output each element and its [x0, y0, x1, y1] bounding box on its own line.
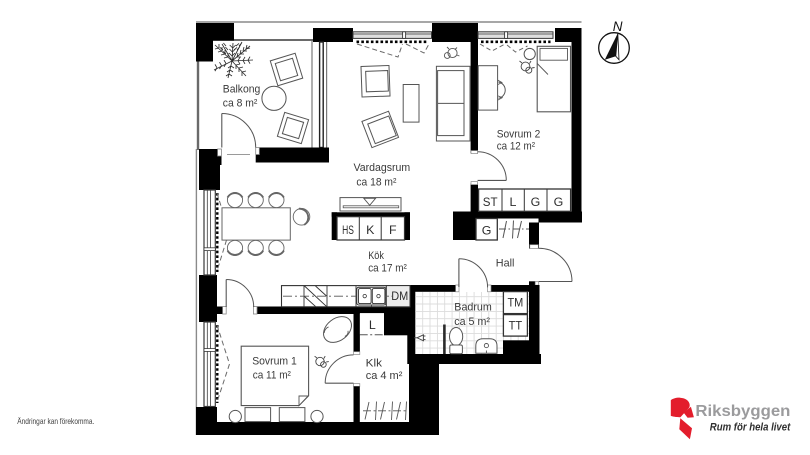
svg-text:TT: TT [509, 319, 523, 333]
svg-text:Hall: Hall [496, 257, 515, 269]
svg-text:K: K [366, 223, 375, 237]
svg-text:L: L [369, 318, 376, 332]
svg-text:DM: DM [391, 289, 408, 303]
svg-text:G: G [554, 195, 564, 209]
svg-text:ca 5 m²: ca 5 m² [454, 316, 490, 328]
svg-text:Kök: Kök [368, 250, 384, 262]
svg-text:Badrum: Badrum [454, 301, 492, 313]
svg-text:TM: TM [508, 296, 524, 310]
svg-text:ca 8 m²: ca 8 m² [223, 98, 258, 110]
svg-text:Ändringar kan förekomma.: Ändringar kan förekomma. [17, 416, 94, 426]
svg-text:Sovrum 1: Sovrum 1 [252, 356, 297, 368]
svg-text:Vardagsrum: Vardagsrum [354, 162, 411, 174]
svg-text:G: G [482, 224, 492, 238]
svg-text:Riksbyggen: Riksbyggen [695, 403, 790, 420]
svg-text:ca 12 m²: ca 12 m² [497, 141, 536, 153]
svg-text:G: G [531, 195, 541, 209]
svg-text:ca 11 m²: ca 11 m² [253, 369, 291, 381]
svg-text:F: F [389, 223, 397, 237]
svg-text:N: N [613, 19, 623, 34]
svg-text:ST: ST [483, 195, 498, 209]
svg-text:Sovrum 2: Sovrum 2 [497, 128, 541, 140]
svg-text:ca 4 m²: ca 4 m² [366, 370, 403, 382]
svg-text:Rum för hela livet: Rum för hela livet [710, 421, 791, 433]
svg-text:ca 18 m²: ca 18 m² [356, 176, 396, 188]
svg-text:Balkong: Balkong [223, 83, 260, 95]
svg-text:Klk: Klk [366, 358, 383, 370]
svg-text:ca 17 m²: ca 17 m² [368, 263, 407, 275]
svg-text:HS: HS [342, 223, 354, 237]
svg-text:L: L [510, 195, 517, 209]
